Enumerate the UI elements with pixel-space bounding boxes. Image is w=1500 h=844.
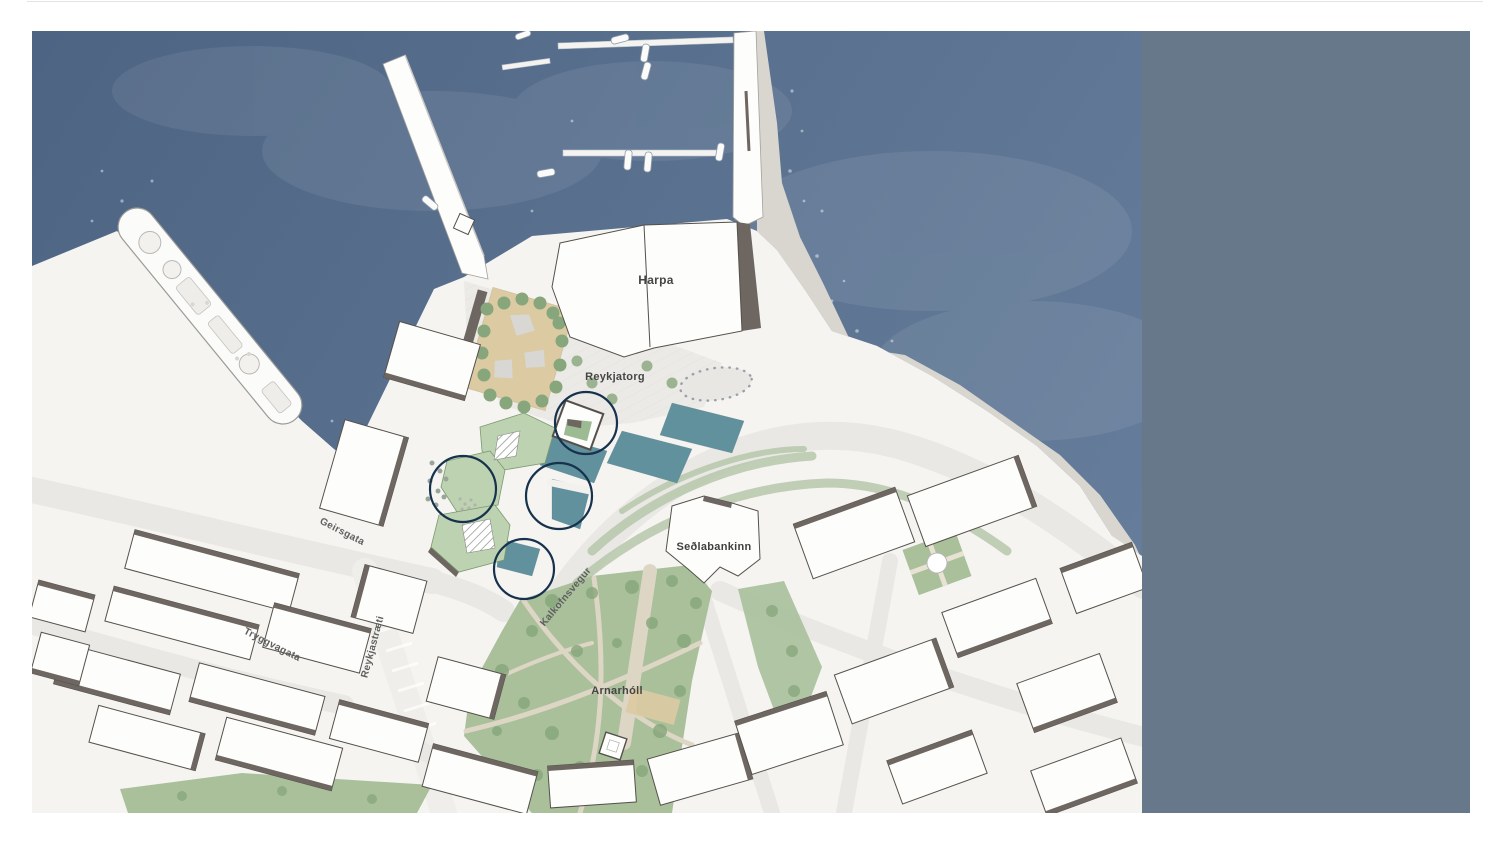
right-cover-panel xyxy=(1142,31,1470,813)
site-plan-map: HarpaReykjatorgSeðlabankinnArnarhóllGeir… xyxy=(32,31,1470,813)
page: HarpaReykjatorgSeðlabankinnArnarhóllGeir… xyxy=(0,0,1500,844)
top-rule xyxy=(27,1,1483,2)
